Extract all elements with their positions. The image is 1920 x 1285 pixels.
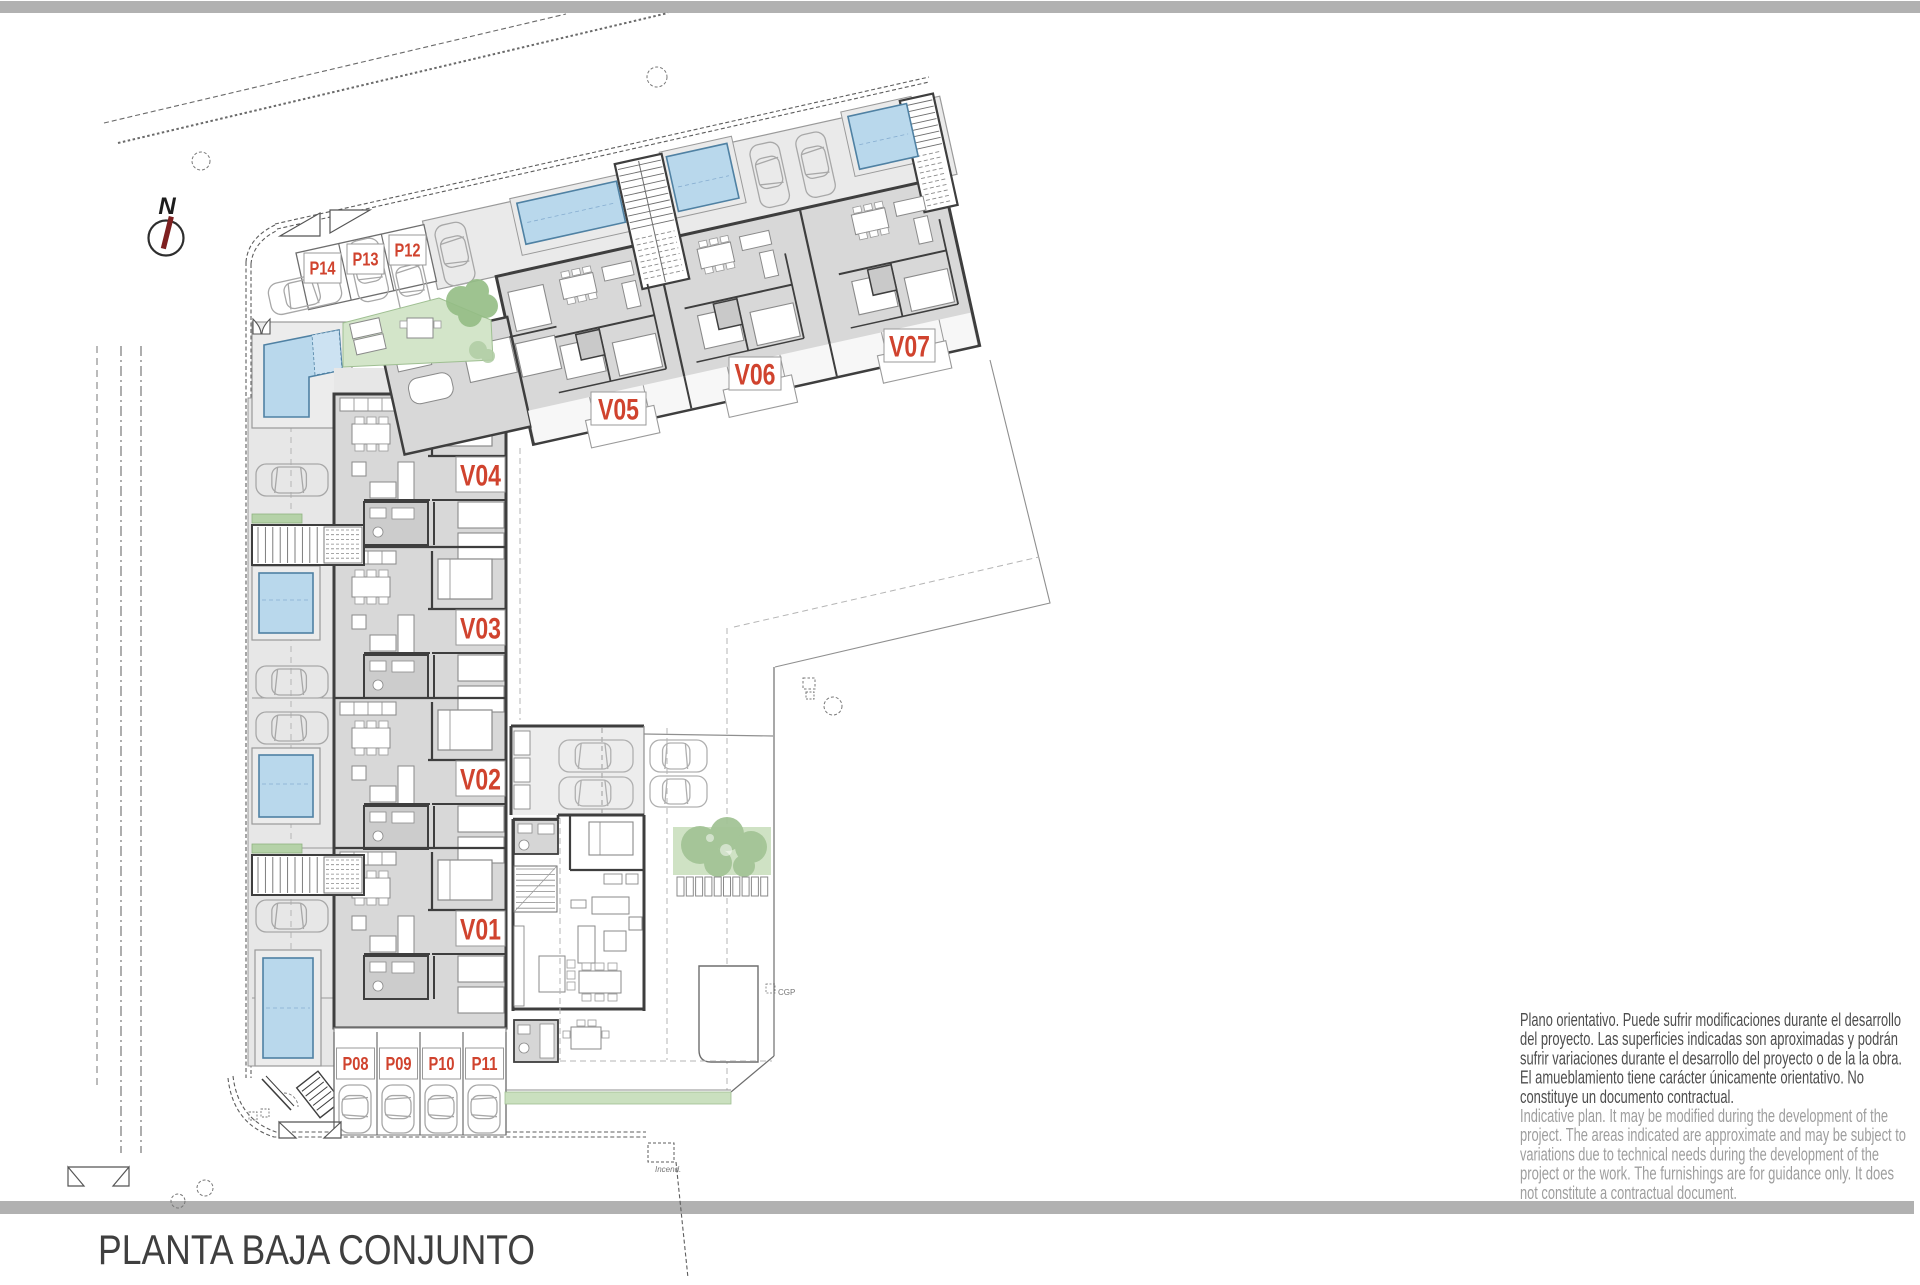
svg-text:N: N bbox=[158, 193, 176, 220]
svg-text:V04: V04 bbox=[460, 459, 501, 492]
svg-text:P11: P11 bbox=[472, 1054, 498, 1074]
svg-text:project. The areas indicated a: project. The areas indicated are approxi… bbox=[1520, 1124, 1906, 1145]
svg-text:del proyecto. Las superficies: del proyecto. Las superficies indicadas … bbox=[1520, 1028, 1898, 1049]
svg-text:not constitute a contractual d: not constitute a contractual document. bbox=[1520, 1182, 1737, 1203]
svg-text:P13: P13 bbox=[353, 250, 379, 270]
svg-text:P10: P10 bbox=[429, 1054, 455, 1074]
svg-text:PLANTA BAJA CONJUNTO: PLANTA BAJA CONJUNTO bbox=[98, 1226, 535, 1273]
svg-text:constituye un documento contra: constituye un documento contractual. bbox=[1520, 1086, 1734, 1107]
svg-text:V06: V06 bbox=[735, 358, 776, 391]
svg-text:P08: P08 bbox=[343, 1054, 369, 1074]
svg-text:V07: V07 bbox=[889, 330, 930, 363]
svg-text:Indicative plan. It may be mod: Indicative plan. It may be modified duri… bbox=[1520, 1105, 1888, 1126]
svg-text:El amueblamiento tiene carácte: El amueblamiento tiene carácter únicamen… bbox=[1520, 1067, 1864, 1088]
svg-text:CGP: CGP bbox=[778, 988, 795, 997]
svg-text:sufrir variaciones durante el: sufrir variaciones durante el desarrollo… bbox=[1520, 1047, 1902, 1068]
svg-text:V01: V01 bbox=[460, 913, 501, 946]
svg-text:variations due to technical ne: variations due to technical needs during… bbox=[1520, 1143, 1879, 1164]
svg-text:V03: V03 bbox=[460, 612, 501, 645]
svg-text:P09: P09 bbox=[386, 1054, 412, 1074]
svg-text:Plano orientativo. Puede sufri: Plano orientativo. Puede sufrir modifica… bbox=[1520, 1009, 1901, 1030]
svg-text:project or the work. The furni: project or the work. The furnishings are… bbox=[1520, 1163, 1894, 1184]
svg-text:V05: V05 bbox=[598, 393, 639, 426]
svg-text:P12: P12 bbox=[395, 241, 421, 261]
svg-text:P14: P14 bbox=[310, 259, 336, 279]
svg-text:V02: V02 bbox=[460, 763, 501, 796]
